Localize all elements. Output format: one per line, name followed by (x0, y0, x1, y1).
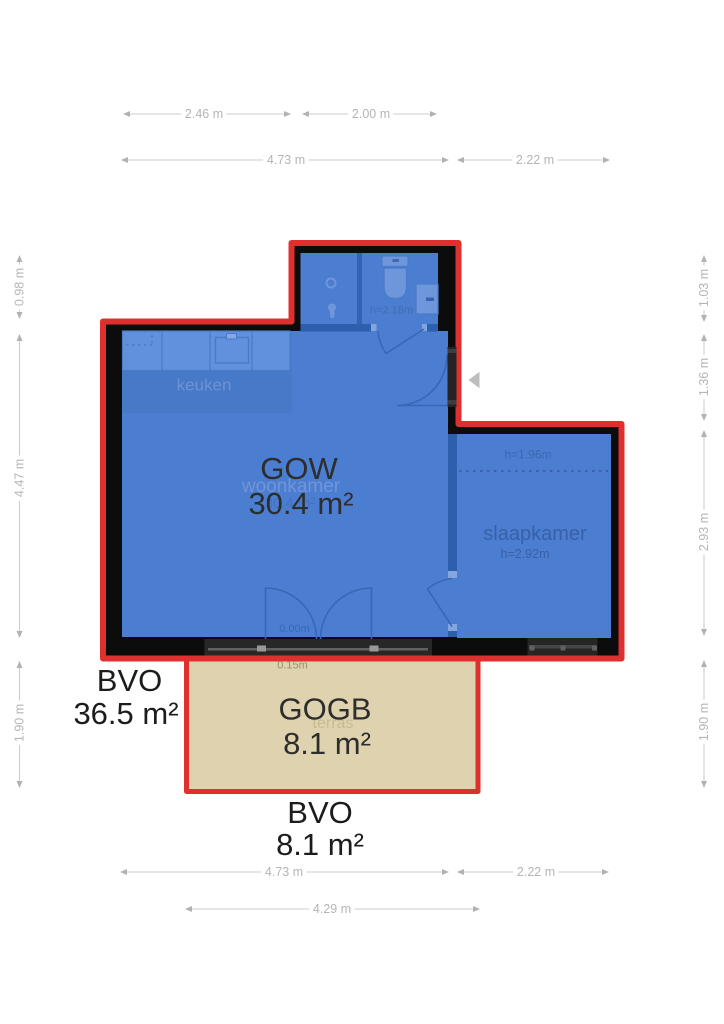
svg-text:8.1 m²: 8.1 m² (276, 827, 364, 862)
svg-text:2.46 m: 2.46 m (185, 107, 223, 121)
svg-text:keuken: keuken (177, 376, 232, 395)
svg-text:4.73 m: 4.73 m (267, 153, 305, 167)
svg-text:4.47 m: 4.47 m (13, 459, 27, 497)
svg-text:2.22 m: 2.22 m (516, 153, 554, 167)
svg-text:0.98 m: 0.98 m (13, 268, 27, 306)
svg-text:1.03 m: 1.03 m (697, 269, 711, 307)
svg-text:30.4 m²: 30.4 m² (248, 486, 353, 521)
svg-text:8.1 m²: 8.1 m² (283, 726, 371, 761)
svg-text:BVO: BVO (97, 663, 162, 698)
svg-text:0.00m: 0.00m (279, 623, 310, 635)
svg-text:4.73 m: 4.73 m (265, 865, 303, 879)
svg-text:h=1.96m: h=1.96m (504, 448, 551, 462)
svg-text:BVO: BVO (287, 795, 352, 830)
svg-text:0.15m: 0.15m (277, 660, 308, 672)
svg-text:GOW: GOW (260, 451, 338, 486)
svg-text:1.36 m: 1.36 m (697, 358, 711, 396)
svg-text:2.93 m: 2.93 m (697, 513, 711, 551)
svg-text:2.22 m: 2.22 m (517, 865, 555, 879)
svg-text:1.90 m: 1.90 m (697, 703, 711, 741)
svg-text:h=2.92m: h=2.92m (501, 547, 550, 561)
svg-text:1.90 m: 1.90 m (13, 704, 27, 742)
svg-text:GOGB: GOGB (278, 692, 371, 727)
svg-text:4.29 m: 4.29 m (313, 902, 351, 916)
svg-text:36.5 m²: 36.5 m² (73, 696, 178, 731)
svg-text:h=2.18m: h=2.18m (370, 305, 413, 317)
svg-text:2.00 m: 2.00 m (352, 107, 390, 121)
svg-text:slaapkamer: slaapkamer (483, 523, 587, 545)
